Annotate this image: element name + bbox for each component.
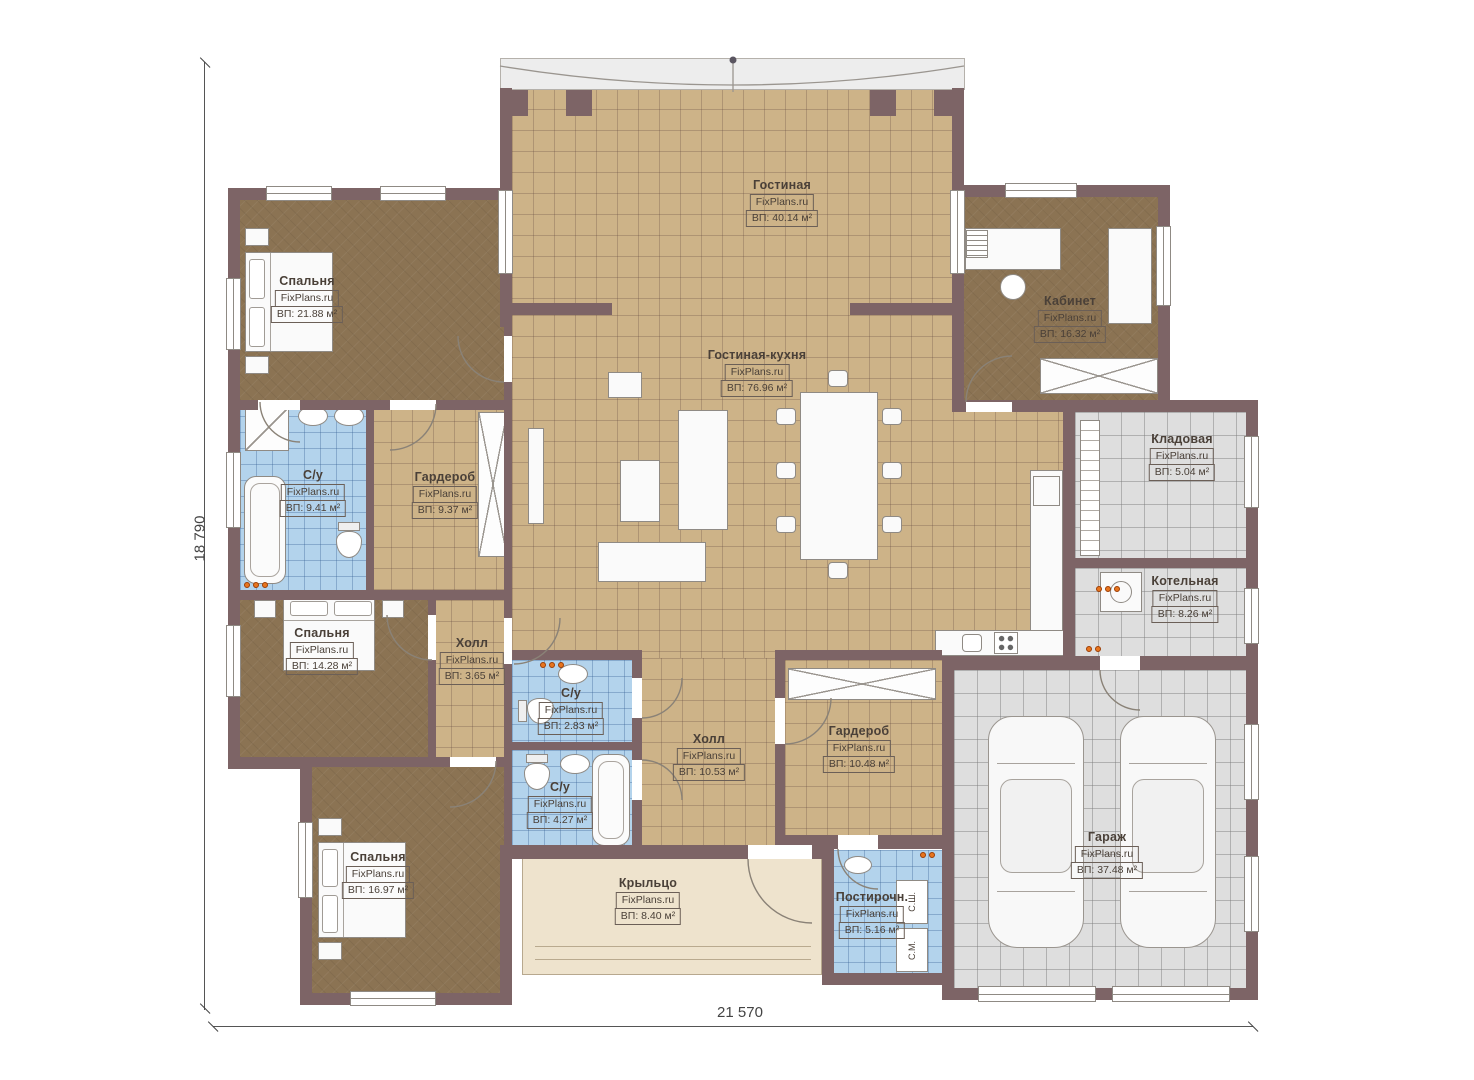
wall — [240, 590, 512, 600]
radiator-markers — [244, 582, 268, 588]
room-label-wardrobe1: Гардероб FixPlans.ru ВП: 9.37 м² — [412, 470, 478, 519]
door-gap — [775, 698, 785, 744]
column — [934, 90, 960, 116]
window — [1244, 588, 1259, 644]
closet-icon — [788, 668, 936, 700]
window — [266, 186, 332, 201]
radiator-markers — [920, 852, 935, 858]
radiator-markers — [1096, 586, 1120, 592]
wall — [512, 303, 612, 315]
door-gap — [838, 835, 878, 849]
tv-stand-icon — [528, 428, 544, 524]
sink-icon — [844, 856, 872, 874]
room-label-laundry: Постирочн. FixPlans.ru ВП: 5.16 м² — [836, 890, 908, 939]
garage-door — [1112, 986, 1230, 1002]
radiator-markers — [540, 662, 564, 668]
dimension-label-bottom: 21 570 — [700, 1004, 780, 1021]
garage-door — [978, 986, 1096, 1002]
door-gap — [258, 400, 300, 410]
column — [502, 90, 528, 116]
room-label-hall-main: Холл FixPlans.ru ВП: 10.53 м² — [673, 732, 745, 781]
wall — [1063, 412, 1075, 658]
column — [870, 90, 896, 116]
wall — [942, 656, 954, 1000]
room-label-office: Кабинет FixPlans.ru ВП: 16.32 м² — [1034, 294, 1106, 343]
room-label-bathroom1: С/у FixPlans.ru ВП: 9.41 м² — [280, 468, 346, 517]
chair-icon — [882, 408, 902, 425]
room-label-bedroom1: Спальня FixPlans.ru ВП: 21.88 м² — [271, 274, 343, 323]
room-label-bedroom3: Спальня FixPlans.ru ВП: 16.97 м² — [342, 850, 414, 899]
terrace-floor — [512, 88, 952, 315]
room-label-wardrobe2: Гардероб FixPlans.ru ВП: 10.48 м² — [823, 724, 895, 773]
nightstand-icon — [382, 600, 404, 618]
wall — [822, 973, 954, 985]
room-label-wc2: С/у FixPlans.ru ВП: 2.83 м² — [538, 686, 604, 735]
shelf-icon — [1080, 420, 1100, 556]
door-gap — [748, 845, 812, 859]
dimension-line-bottom — [213, 1026, 1253, 1027]
porch-step — [535, 959, 811, 960]
window — [226, 625, 241, 697]
sink-icon — [560, 754, 590, 774]
door-gap — [450, 757, 496, 767]
wall — [822, 845, 834, 985]
wall — [1158, 400, 1258, 412]
coffee-table-icon — [620, 460, 660, 522]
printer-icon — [966, 230, 988, 258]
boiler-icon — [1100, 572, 1142, 612]
window — [498, 190, 513, 274]
fridge-icon — [1033, 476, 1060, 506]
room-label-bedroom2: Спальня FixPlans.ru ВП: 14.28 м² — [286, 626, 358, 675]
window — [298, 822, 313, 898]
wall — [850, 303, 952, 315]
window — [226, 452, 241, 528]
chair-icon — [882, 462, 902, 479]
chair-icon — [776, 408, 796, 425]
chair-icon — [828, 562, 848, 579]
sofa-icon — [598, 542, 706, 582]
nightstand-icon — [318, 818, 342, 836]
window — [1244, 436, 1259, 508]
room-label-living-kitchen: Гостиная-кухня FixPlans.ru ВП: 76.96 м² — [708, 348, 807, 397]
stove-icon — [994, 632, 1018, 654]
nightstand-icon — [318, 942, 342, 960]
car-icon — [988, 716, 1084, 948]
room-label-storage: Кладовая FixPlans.ru ВП: 5.04 м² — [1149, 432, 1215, 481]
window — [1005, 183, 1077, 198]
wall — [512, 742, 632, 750]
nightstand-icon — [245, 356, 269, 374]
window — [1244, 724, 1259, 800]
toilet-icon — [336, 522, 362, 558]
door-gap — [504, 336, 512, 382]
sofa-icon — [678, 410, 728, 530]
room-label-wc3: С/у FixPlans.ru ВП: 4.27 м² — [527, 780, 593, 829]
dimension-label-left: 18 790 — [192, 509, 209, 569]
window — [1244, 856, 1259, 932]
wall — [312, 757, 440, 767]
nightstand-icon — [245, 228, 269, 246]
door-gap — [390, 400, 436, 410]
window — [350, 991, 436, 1006]
chair-icon — [828, 370, 848, 387]
room-label-porch: Крыльцо FixPlans.ru ВП: 8.40 м² — [615, 876, 681, 925]
window — [226, 278, 241, 350]
closet-icon — [1040, 358, 1158, 394]
window — [1156, 226, 1171, 306]
shower-icon — [245, 407, 289, 451]
dining-table-icon — [800, 392, 878, 560]
wall — [1075, 558, 1246, 568]
wall — [366, 400, 374, 600]
washer-label: С.М. — [907, 941, 917, 960]
door-gap — [1100, 656, 1140, 670]
wall — [500, 845, 512, 1005]
room-label-hall-small: Холл FixPlans.ru ВП: 3.65 м² — [439, 636, 505, 685]
dryer-label: С.Ш. — [907, 892, 917, 912]
bathtub-icon — [592, 754, 630, 846]
door-gap — [428, 615, 436, 660]
kitchen-sink-icon — [962, 634, 982, 652]
room-label-living: Гостиная FixPlans.ru ВП: 40.14 м² — [746, 178, 818, 227]
office-chair-icon — [1000, 274, 1026, 300]
room-label-garage: Гараж FixPlans.ru ВП: 37.48 м² — [1071, 830, 1143, 879]
office-sofa-icon — [1108, 228, 1152, 324]
porch-step — [535, 946, 811, 947]
radiator-markers — [1086, 646, 1101, 652]
chair-icon — [776, 462, 796, 479]
room-label-boiler: Котельная FixPlans.ru ВП: 8.26 м² — [1151, 574, 1218, 623]
window — [380, 186, 446, 201]
window — [950, 190, 965, 274]
door-gap — [632, 760, 642, 800]
nightstand-icon — [254, 600, 276, 618]
door-gap — [632, 678, 642, 718]
chair-icon — [776, 516, 796, 533]
door-gap — [966, 402, 1012, 412]
wall — [775, 650, 785, 845]
terrace-awning — [500, 58, 965, 90]
wall — [512, 650, 640, 660]
wall — [775, 650, 942, 660]
side-table-icon — [608, 372, 642, 398]
floor-plan-canvas: С.Ш. С.М. — [0, 0, 1474, 1080]
chair-icon — [882, 516, 902, 533]
column — [566, 90, 592, 116]
